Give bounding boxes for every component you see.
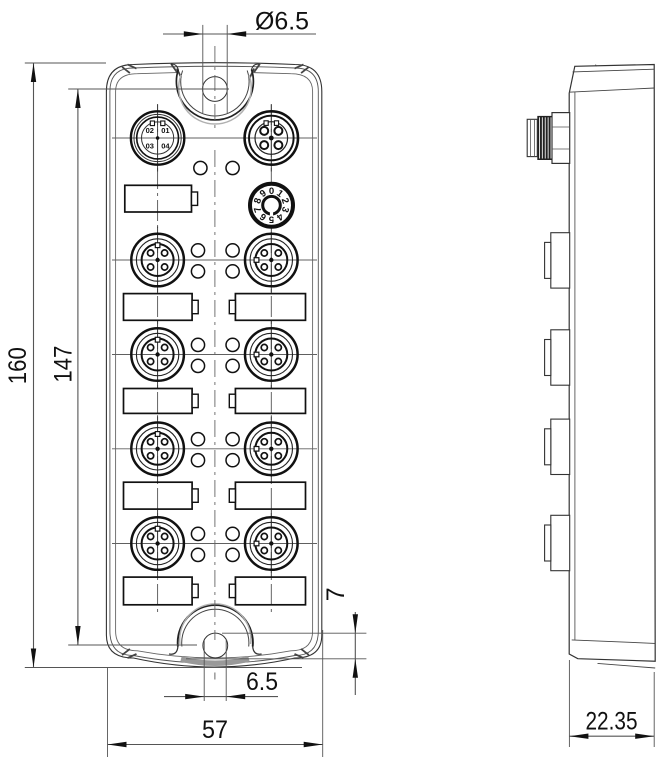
svg-text:147: 147 <box>49 346 77 383</box>
svg-text:7: 7 <box>322 587 350 601</box>
svg-text:0: 0 <box>269 186 274 197</box>
svg-text:03: 03 <box>146 141 154 150</box>
svg-text:160: 160 <box>4 347 32 384</box>
svg-text:57: 57 <box>202 716 228 744</box>
svg-text:02: 02 <box>146 126 154 135</box>
svg-text:22.35: 22.35 <box>586 708 638 736</box>
svg-text:04: 04 <box>161 141 170 150</box>
svg-text:Ø6.5: Ø6.5 <box>255 8 309 36</box>
svg-text:01: 01 <box>161 126 169 135</box>
svg-text:5: 5 <box>268 214 274 225</box>
svg-text:6.5: 6.5 <box>246 668 278 696</box>
